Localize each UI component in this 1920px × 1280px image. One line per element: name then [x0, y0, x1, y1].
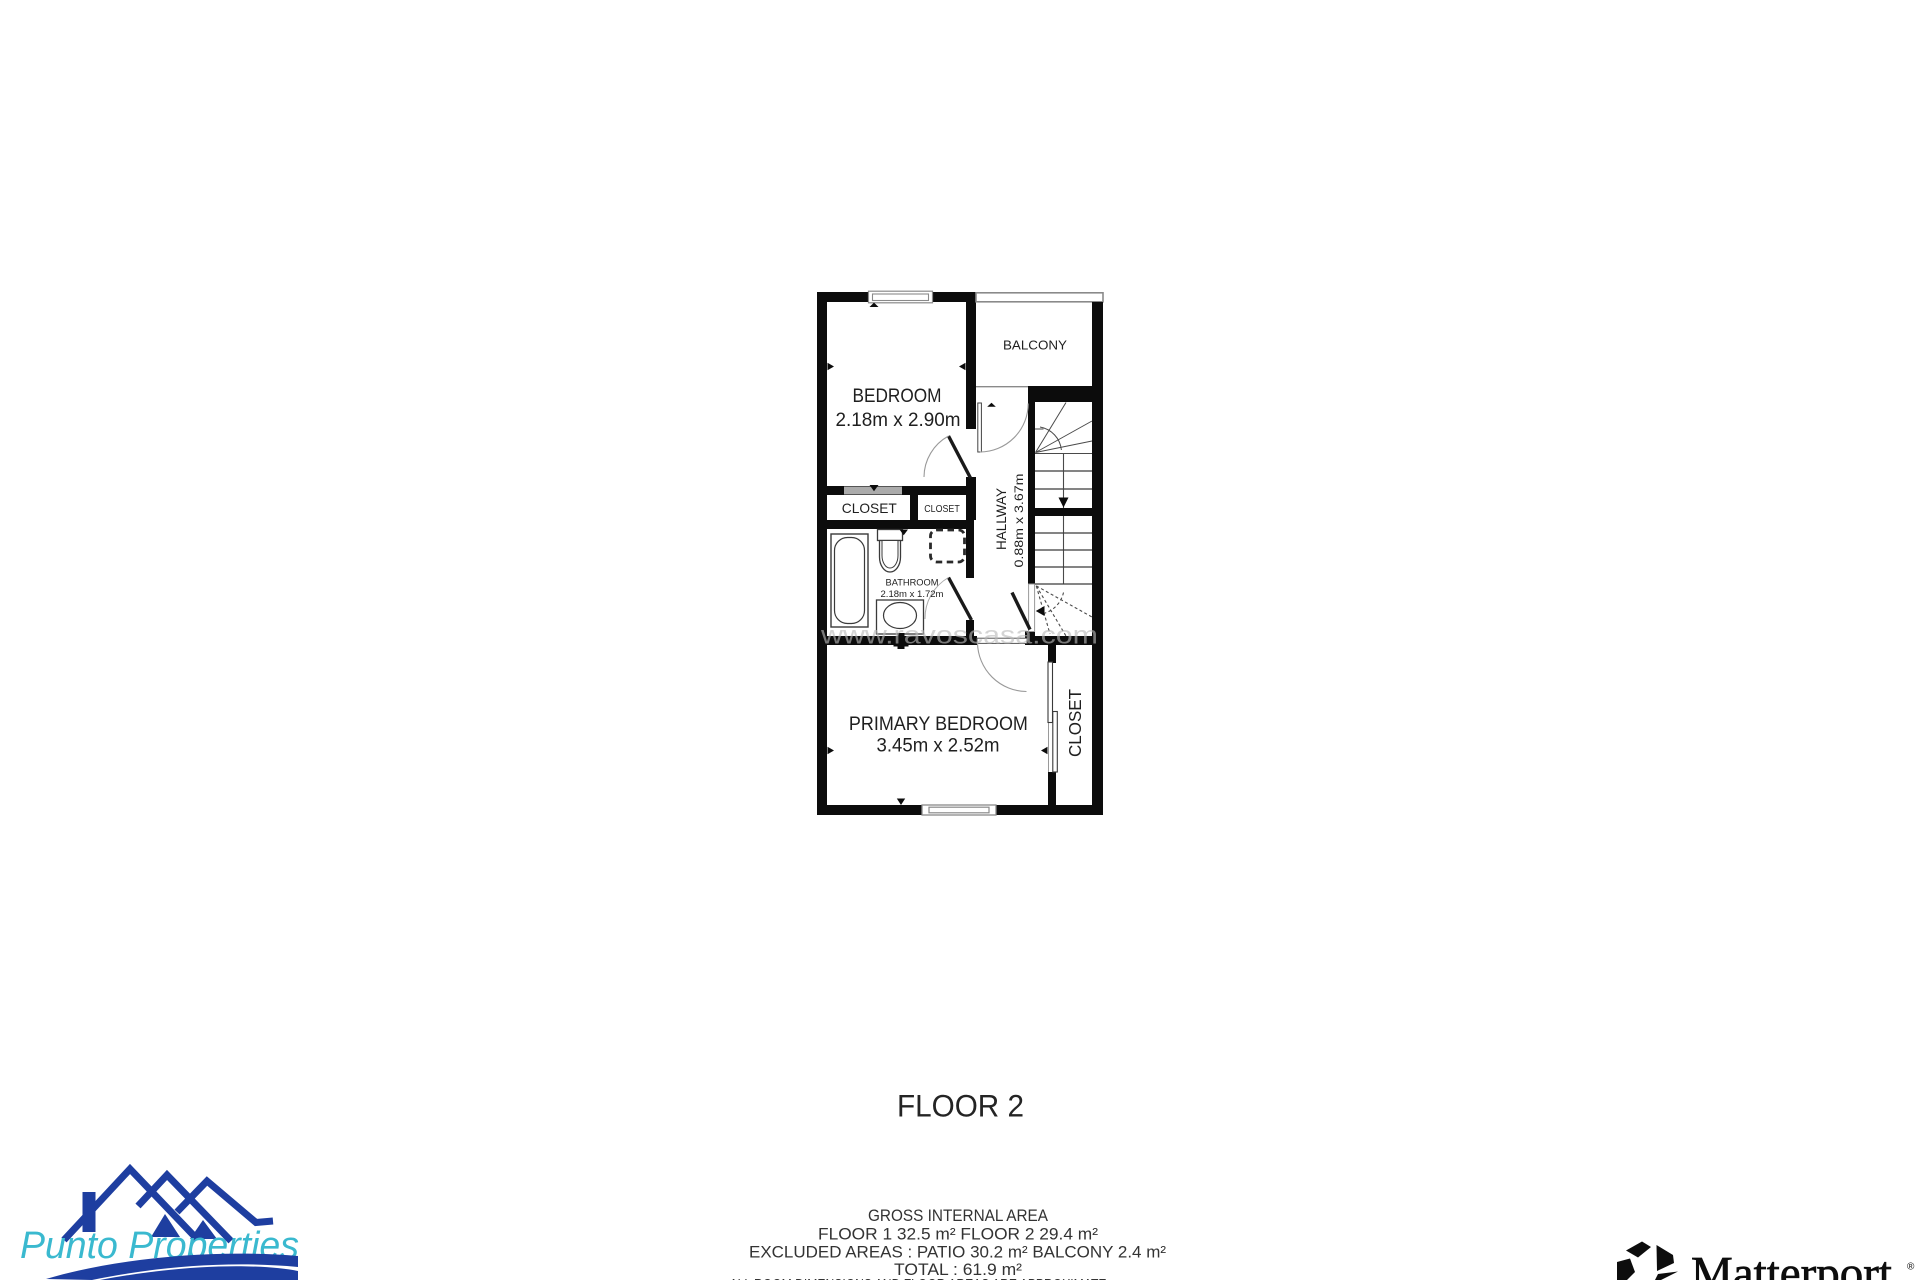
svg-text:CLOSET: CLOSET	[1065, 689, 1085, 757]
svg-text:Matterport: Matterport	[1691, 1248, 1892, 1280]
svg-text:FLOOR 2: FLOOR 2	[897, 1088, 1024, 1124]
svg-text:2.18m x 2.90m: 2.18m x 2.90m	[836, 409, 961, 431]
svg-text:FLOOR 1 32.5 m² FLOOR 2 29.4: FLOOR 1 32.5 m² FLOOR 2 29.4 m²	[818, 1225, 1098, 1244]
svg-text:0.88m x 3.67m: 0.88m x 3.67m	[1012, 474, 1026, 568]
svg-text:PRIMARY BEDROOM: PRIMARY BEDROOM	[849, 713, 1028, 735]
svg-text:BEDROOM: BEDROOM	[853, 385, 942, 407]
svg-text:www.ravoscasa.com: www.ravoscasa.com	[820, 622, 1098, 650]
svg-text:CLOSET: CLOSET	[842, 500, 897, 516]
svg-text:BALCONY: BALCONY	[1003, 338, 1067, 353]
svg-text:HALLWAY: HALLWAY	[994, 487, 1010, 550]
svg-text:BATHROOM: BATHROOM	[886, 578, 939, 588]
svg-text:GROSS INTERNAL AREA: GROSS INTERNAL AREA	[868, 1206, 1049, 1225]
svg-text:2.18m x 1.72m: 2.18m x 1.72m	[881, 589, 944, 600]
svg-text:3.45m x 2.52m: 3.45m x 2.52m	[877, 735, 1000, 757]
svg-text:CLOSET: CLOSET	[924, 504, 960, 515]
svg-text:®: ®	[1907, 1262, 1915, 1273]
svg-text:EXCLUDED AREAS : PATIO 30.2 m: EXCLUDED AREAS : PATIO 30.2 m² BALCONY 2…	[749, 1243, 1166, 1262]
